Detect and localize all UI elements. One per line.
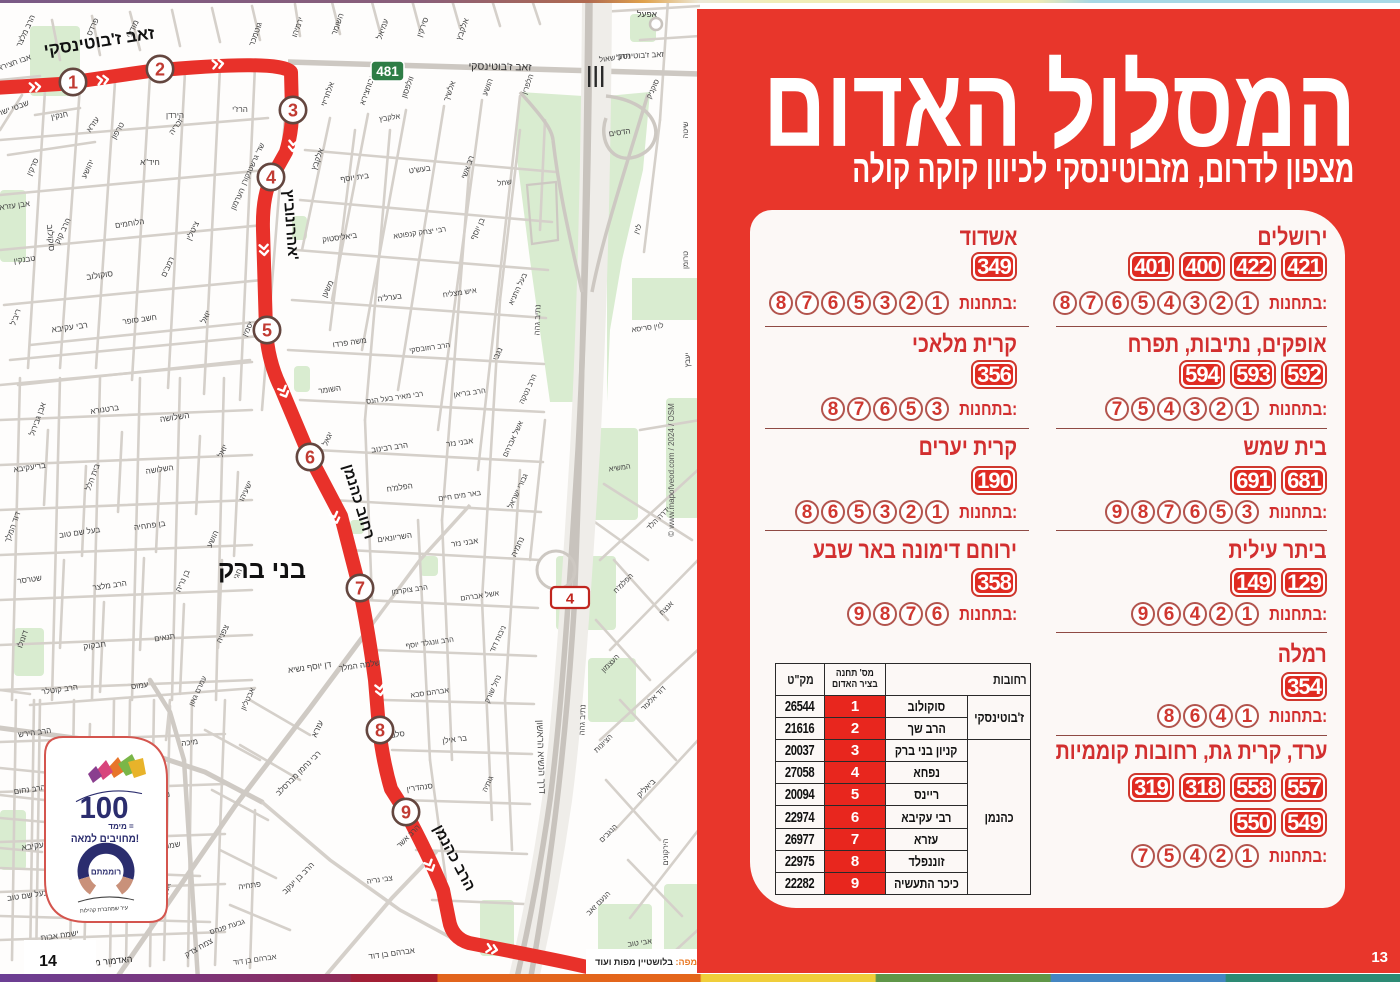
svg-text:7: 7 (355, 579, 365, 599)
svg-text:טרומן: טרומן (681, 251, 690, 269)
svg-text:5: 5 (262, 321, 272, 341)
svg-text:שיטה: שיטה (681, 121, 690, 139)
svg-text:מימד =: מימד = (108, 822, 134, 831)
svg-text:6: 6 (305, 448, 315, 468)
svg-text:נתיב גהה: נתיב גהה (577, 704, 587, 735)
svg-text:4: 4 (566, 591, 575, 608)
svg-text:מפה: בלושטיין מפות ועוד: מפה: בלושטיין מפות ועוד (595, 957, 697, 967)
svg-text:הרז'י: הרז'י (232, 105, 248, 114)
svg-text:יעבץ: יעבץ (683, 353, 692, 368)
svg-text:© www.mapofveod.com / 2024 / O: © www.mapofveod.com / 2024 / OSM (667, 403, 676, 537)
svg-text:1: 1 (68, 73, 78, 93)
svg-text:9: 9 (401, 803, 411, 823)
svg-text:חיד"א: חיד"א (140, 158, 160, 167)
svg-text:בני ברק: בני ברק (218, 556, 306, 584)
svg-text:14: 14 (39, 953, 57, 970)
svg-text:זאב ז'בוטינסקי: זאב ז'בוטינסקי (468, 60, 532, 73)
svg-text:4: 4 (266, 168, 276, 188)
svg-text:2: 2 (155, 60, 165, 80)
svg-text:נתיב גהה: נתיב גהה (532, 304, 542, 335)
svg-text:רוממתם: רוממתם (91, 868, 121, 877)
svg-text:8: 8 (375, 721, 385, 741)
svg-text:481: 481 (376, 64, 399, 79)
svg-text:3: 3 (288, 101, 298, 121)
svg-text:הירקונים: הירקונים (661, 838, 670, 865)
